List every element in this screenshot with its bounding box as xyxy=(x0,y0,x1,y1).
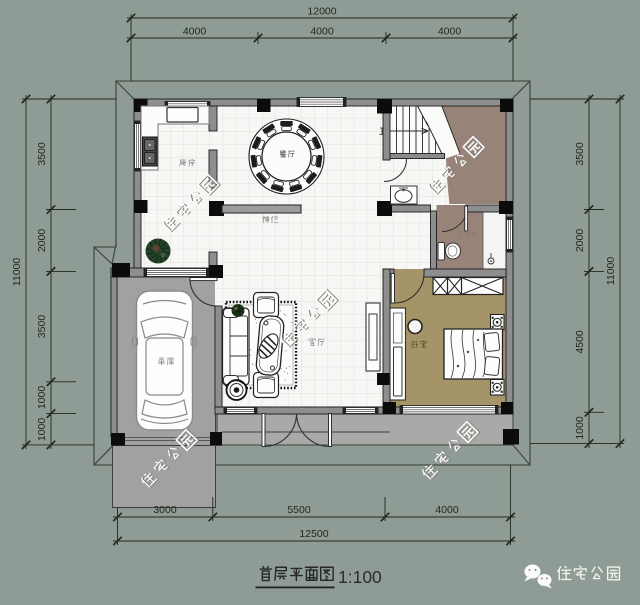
svg-text:11000: 11000 xyxy=(605,257,617,286)
svg-text:11000: 11000 xyxy=(11,258,23,287)
svg-text:4000: 4000 xyxy=(183,26,207,38)
svg-text:4000: 4000 xyxy=(438,26,462,38)
svg-text:1:100: 1:100 xyxy=(338,567,382,587)
svg-text:2000: 2000 xyxy=(574,229,586,253)
svg-text:3500: 3500 xyxy=(574,142,586,166)
svg-text:4000: 4000 xyxy=(310,26,334,38)
svg-text:4000: 4000 xyxy=(435,504,459,516)
svg-text:4500: 4500 xyxy=(574,330,586,354)
svg-text:2000: 2000 xyxy=(36,229,48,253)
svg-text:1000: 1000 xyxy=(36,386,48,410)
svg-text:12500: 12500 xyxy=(299,528,328,540)
svg-text:3000: 3000 xyxy=(153,504,177,516)
svg-text:5500: 5500 xyxy=(287,504,311,516)
svg-text:3500: 3500 xyxy=(36,315,48,339)
svg-text:1000: 1000 xyxy=(36,418,48,442)
svg-text:12000: 12000 xyxy=(307,6,336,18)
svg-text:1000: 1000 xyxy=(574,416,586,440)
svg-text:3500: 3500 xyxy=(36,142,48,166)
